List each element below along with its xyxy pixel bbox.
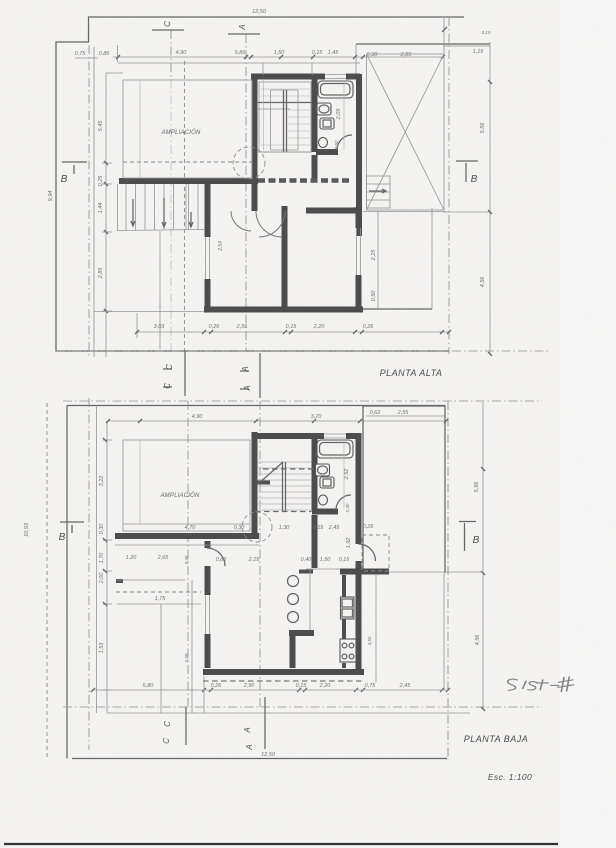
svg-text:0,86: 0,86 bbox=[99, 51, 111, 57]
svg-text:2,20: 2,20 bbox=[319, 683, 332, 689]
svg-text:A: A bbox=[243, 385, 252, 391]
svg-text:2,45: 2,45 bbox=[328, 525, 341, 531]
svg-text:9,94: 9,94 bbox=[48, 191, 54, 202]
svg-text:1,53: 1,53 bbox=[99, 642, 105, 654]
svg-text:0,25: 0,25 bbox=[98, 175, 104, 187]
svg-text:4,56: 4,56 bbox=[480, 276, 486, 288]
svg-text:0,29: 0,29 bbox=[184, 653, 189, 662]
svg-text:1,20: 1,20 bbox=[126, 555, 138, 561]
svg-text:A: A bbox=[245, 744, 254, 750]
svg-text:5,45: 5,45 bbox=[98, 120, 104, 132]
svg-text:C: C bbox=[162, 738, 171, 744]
svg-text:2,85: 2,85 bbox=[98, 267, 104, 280]
svg-text:4,50: 4,50 bbox=[367, 636, 372, 645]
svg-text:0,15: 0,15 bbox=[313, 525, 325, 531]
svg-text:1,45: 1,45 bbox=[328, 50, 340, 56]
svg-text:2,25: 2,25 bbox=[371, 249, 377, 262]
svg-text:2,85: 2,85 bbox=[400, 52, 413, 58]
svg-text:0,45: 0,45 bbox=[184, 555, 189, 564]
svg-text:PLANTA ALTA: PLANTA ALTA bbox=[380, 368, 443, 378]
svg-text:1,75: 1,75 bbox=[155, 596, 167, 602]
svg-text:0,15: 0,15 bbox=[339, 557, 351, 563]
svg-text:0,26: 0,26 bbox=[363, 324, 375, 330]
svg-text:0,15: 0,15 bbox=[482, 30, 491, 35]
svg-text:3,03: 3,03 bbox=[154, 324, 166, 330]
svg-text:0,15: 0,15 bbox=[286, 324, 298, 330]
svg-text:1,50: 1,50 bbox=[320, 557, 332, 563]
svg-text:B: B bbox=[61, 174, 68, 185]
svg-text:AMPLIACIÓN: AMPLIACIÓN bbox=[160, 129, 200, 136]
svg-text:12,50: 12,50 bbox=[252, 9, 267, 15]
svg-text:C: C bbox=[163, 383, 172, 389]
svg-text:5,56: 5,56 bbox=[480, 122, 486, 134]
svg-text:4,90: 4,90 bbox=[176, 50, 188, 56]
svg-text:3,22: 3,22 bbox=[99, 476, 105, 487]
svg-text:0,26: 0,26 bbox=[209, 324, 221, 330]
svg-text:2,09: 2,09 bbox=[336, 109, 342, 121]
svg-text:A: A bbox=[243, 727, 252, 733]
svg-text:2,90: 2,90 bbox=[243, 683, 256, 689]
svg-text:4,70: 4,70 bbox=[185, 525, 197, 531]
svg-text:C: C bbox=[163, 721, 172, 727]
svg-text:B: B bbox=[471, 174, 478, 185]
svg-text:0,26: 0,26 bbox=[211, 683, 223, 689]
svg-text:2,56: 2,56 bbox=[236, 324, 249, 330]
svg-text:A: A bbox=[241, 366, 250, 372]
svg-text:A: A bbox=[238, 24, 247, 30]
svg-text:B: B bbox=[473, 535, 480, 546]
svg-text:3,70: 3,70 bbox=[311, 414, 323, 420]
svg-text:1,92: 1,92 bbox=[346, 538, 352, 549]
svg-text:0,90: 0,90 bbox=[334, 140, 339, 149]
svg-text:2,45: 2,45 bbox=[399, 683, 412, 689]
svg-text:1,70: 1,70 bbox=[99, 552, 105, 564]
svg-text:2,00: 2,00 bbox=[99, 572, 105, 585]
svg-text:PLANTA BAJA: PLANTA BAJA bbox=[464, 734, 529, 744]
svg-text:5,56: 5,56 bbox=[474, 481, 480, 493]
svg-text:0,15: 0,15 bbox=[312, 50, 324, 56]
svg-text:4,56: 4,56 bbox=[475, 634, 481, 646]
svg-text:12,50: 12,50 bbox=[261, 752, 276, 758]
svg-text:B: B bbox=[59, 532, 66, 543]
svg-text:0,30: 0,30 bbox=[99, 523, 105, 535]
svg-text:0,26: 0,26 bbox=[363, 524, 375, 530]
svg-text:AMPLIACIÓN: AMPLIACIÓN bbox=[159, 492, 199, 499]
svg-text:0,30: 0,30 bbox=[234, 525, 246, 531]
svg-text:0,50: 0,50 bbox=[371, 290, 377, 302]
svg-text:2,54: 2,54 bbox=[218, 241, 224, 252]
svg-text:0,75: 0,75 bbox=[75, 51, 87, 57]
svg-text:1,15: 1,15 bbox=[473, 49, 485, 55]
svg-text:1,44: 1,44 bbox=[98, 203, 104, 214]
svg-text:0,30: 0,30 bbox=[345, 503, 350, 512]
svg-text:C: C bbox=[165, 364, 174, 370]
svg-text:2,55: 2,55 bbox=[397, 410, 410, 416]
svg-text:2,15: 2,15 bbox=[248, 557, 261, 563]
svg-text:0,40: 0,40 bbox=[301, 557, 313, 563]
svg-text:4,90: 4,90 bbox=[192, 414, 204, 420]
svg-text:5,80: 5,80 bbox=[143, 683, 155, 689]
svg-text:2,20: 2,20 bbox=[313, 324, 326, 330]
svg-text:0,86: 0,86 bbox=[216, 557, 228, 563]
svg-text:C: C bbox=[163, 21, 172, 27]
svg-text:0,15: 0,15 bbox=[296, 683, 308, 689]
svg-text:0,75: 0,75 bbox=[365, 683, 377, 689]
svg-text:5,86: 5,86 bbox=[235, 50, 247, 56]
svg-text:2,52: 2,52 bbox=[344, 469, 350, 481]
svg-text:Esc. 1:100: Esc. 1:100 bbox=[488, 772, 532, 782]
svg-text:2,65: 2,65 bbox=[157, 555, 170, 561]
svg-text:1,30: 1,30 bbox=[279, 525, 291, 531]
svg-text:1,50: 1,50 bbox=[274, 50, 286, 56]
svg-text:10,93: 10,93 bbox=[24, 522, 30, 537]
svg-text:0,62: 0,62 bbox=[370, 410, 381, 416]
